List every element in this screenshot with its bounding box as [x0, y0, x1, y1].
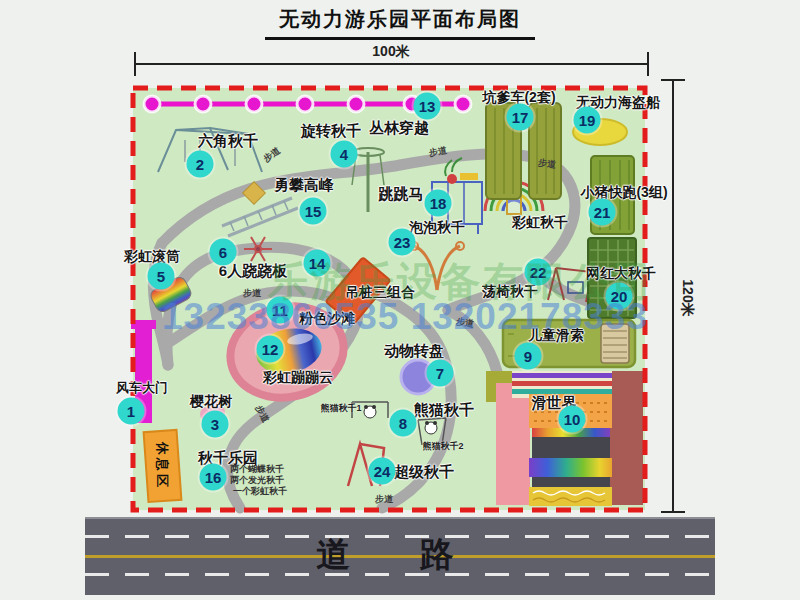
poi-label-5: 彩虹滚筒 — [124, 248, 180, 266]
poi-label-24: 超级秋千 — [394, 463, 454, 482]
poi-badge-9: 9 — [515, 343, 542, 370]
poi-label-11: 粉色沙滩 — [299, 310, 355, 328]
width-dimension-label: 100米 — [372, 43, 409, 61]
rest-area-label: 休息区 — [153, 442, 171, 490]
poi-badge-24: 24 — [369, 458, 396, 485]
poi-badge-5: 5 — [148, 263, 175, 290]
poi-label-1: 风车大门 — [116, 379, 168, 397]
poi-badge-15: 15 — [300, 198, 327, 225]
poi-badge-7: 7 — [427, 360, 454, 387]
poi-label-9: 儿童滑索 — [528, 327, 584, 345]
poi-badge-18: 18 — [425, 190, 452, 217]
walkway-label: 步道 — [375, 493, 393, 506]
poi-label-21: 小猪快跑(3组) — [580, 184, 667, 202]
poi-label-6: 6人跷跷板 — [219, 262, 287, 281]
poi-badge-17: 17 — [507, 104, 534, 131]
road-label: 道 路 — [85, 532, 715, 578]
poi-badge-19: 19 — [574, 107, 601, 134]
panda-swing-1-note: 熊猫秋千1 — [320, 402, 361, 415]
map-title: 无动力游乐园平面布局图 — [265, 6, 535, 40]
poi-label-3: 樱花树 — [190, 393, 232, 411]
poi-label-18: 跳跳马 — [379, 185, 424, 204]
poi-badge-1: 1 — [118, 398, 145, 425]
poi-badge-14: 14 — [304, 250, 331, 277]
walkway-label: 步道 — [243, 287, 261, 300]
slide-world-graphic — [486, 371, 643, 506]
poi-badge-13: 13 — [414, 93, 441, 120]
poi-label-7: 动物转盘 — [384, 342, 444, 361]
poi-badge-3: 3 — [202, 411, 229, 438]
road: 道 路 — [85, 517, 715, 595]
poi-badge-2: 2 — [187, 151, 214, 178]
poi-badge-10: 10 — [559, 406, 586, 433]
height-dimension-label: 120米 — [678, 279, 696, 316]
poi-badge-4: 4 — [331, 141, 358, 168]
poi-label-4: 旋转秋千 — [301, 122, 361, 141]
poi-badge-21: 21 — [589, 199, 616, 226]
park-map: 无动力游乐园平面布局图 100米 120米 风车大门 六角秋千 樱花树 旋转秋千… — [0, 0, 800, 600]
poi-badge-8: 8 — [390, 410, 417, 437]
panda-swing-2-note: 熊猫秋千2 — [422, 440, 463, 453]
poi-label-14: 吊桩三组合 — [345, 284, 415, 302]
poi-badge-23: 23 — [389, 229, 416, 256]
poi-badge-16: 16 — [200, 464, 227, 491]
poi-badge-11: 11 — [267, 297, 294, 324]
swing-park-note-3: 一个彩虹秋千 — [233, 485, 287, 498]
poi-label-13: 丛林穿越 — [369, 119, 429, 138]
poi-badge-6: 6 — [210, 239, 237, 266]
walkway-label: 步道 — [537, 156, 557, 171]
poi-label-8: 熊猫秋千 — [414, 401, 474, 420]
poi-label-23: 泡泡秋千 — [409, 219, 465, 237]
poi-label-15: 勇攀高峰 — [274, 176, 334, 195]
poi-label-20: 网红大秋千 — [586, 265, 656, 283]
poi-badge-12: 12 — [257, 336, 284, 363]
poi-label-12: 彩虹蹦蹦云 — [263, 369, 333, 387]
poi-label-2: 六角秋千 — [198, 132, 258, 151]
poi-badge-20: 20 — [606, 283, 633, 310]
poi-label-22: 荡椅秋千 — [482, 283, 538, 301]
poi-badge-22: 22 — [525, 259, 552, 286]
poi-label-rainbow-swing: 彩虹秋千 — [512, 214, 568, 232]
